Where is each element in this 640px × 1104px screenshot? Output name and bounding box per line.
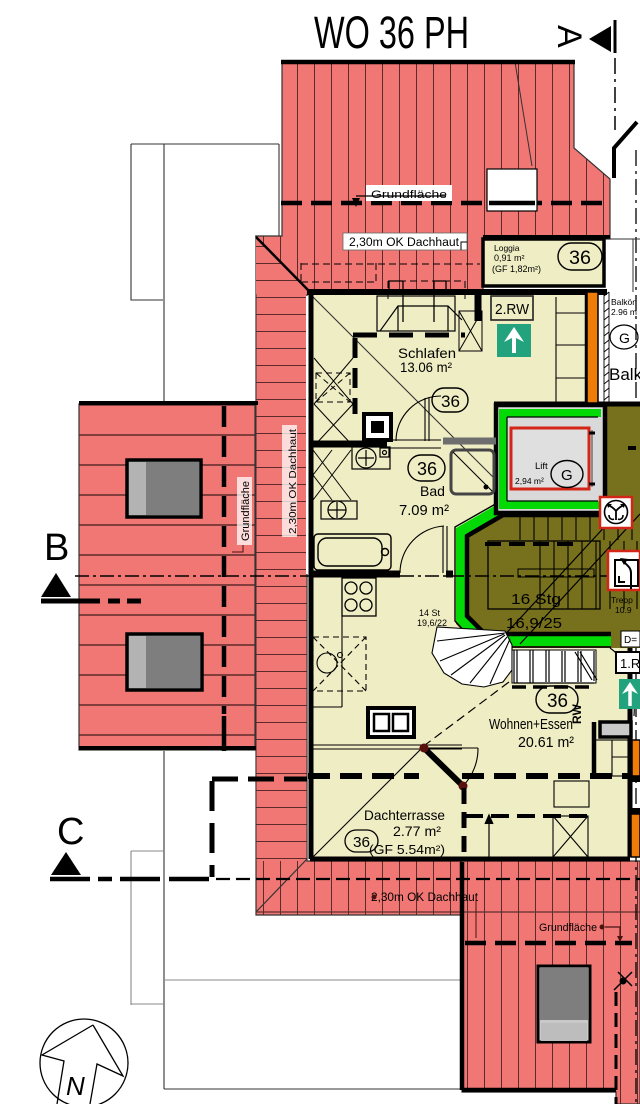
svg-text:36: 36: [441, 392, 460, 411]
svg-text:D=: D=: [624, 635, 637, 646]
svg-text:Grundfläche: Grundfläche: [240, 481, 252, 541]
svg-text:2,94 m²: 2,94 m²: [515, 476, 544, 486]
svg-text:Lift: Lift: [535, 461, 548, 472]
svg-text:0,91 m²: 0,91 m²: [494, 253, 525, 263]
svg-text:36: 36: [547, 691, 568, 712]
svg-text:Balkön: Balkön: [611, 297, 637, 307]
svg-text:2.96 m: 2.96 m: [611, 307, 637, 317]
svg-text:Loggia: Loggia: [494, 243, 520, 253]
svg-text:2.77 m²: 2.77 m²: [393, 823, 441, 839]
svg-text:14 St: 14 St: [419, 608, 441, 618]
svg-text:Balk: Balk: [609, 365, 640, 384]
svg-text:2,30m OK Dachhaut: 2,30m OK Dachhaut: [287, 429, 299, 534]
svg-text:B: B: [44, 527, 69, 569]
svg-text:36: 36: [569, 248, 591, 269]
svg-text:2,30m OK Dachhaut: 2,30m OK Dachhaut: [349, 237, 460, 249]
svg-text:Dachterrasse: Dachterrasse: [364, 807, 445, 823]
svg-text:36: 36: [417, 459, 437, 479]
svg-text:2,30m OK Dachhaut: 2,30m OK Dachhaut: [371, 892, 479, 904]
svg-text:(GF 1,82m²): (GF 1,82m²): [492, 264, 541, 274]
svg-text:G: G: [619, 330, 630, 346]
svg-text:A: A: [550, 25, 588, 48]
svg-text:36: 36: [353, 834, 370, 851]
svg-text:7.09 m²: 7.09 m²: [399, 502, 449, 519]
svg-text:N: N: [66, 1071, 85, 1101]
svg-text:19,6/22: 19,6/22: [417, 618, 447, 628]
svg-text:Grundfläche: Grundfläche: [539, 922, 597, 934]
svg-text:C: C: [57, 811, 84, 853]
svg-text:Trepp: Trepp: [611, 595, 633, 605]
svg-text:G: G: [561, 467, 573, 484]
svg-text:2.RW: 2.RW: [495, 301, 530, 318]
svg-text:Wohnen+Essen: Wohnen+Essen: [489, 716, 573, 733]
svg-text:WO 36 PH: WO 36 PH: [314, 7, 469, 58]
svg-text:16,9/25: 16,9/25: [506, 615, 562, 632]
svg-text:13.06 m²: 13.06 m²: [400, 359, 452, 375]
svg-text:10.9: 10.9: [615, 605, 632, 615]
svg-text:Grundfläche: Grundfläche: [371, 189, 447, 201]
svg-text:Bad: Bad: [420, 483, 445, 499]
svg-text:20.61 m²: 20.61 m²: [518, 734, 574, 751]
svg-text:(GF 5.54m²): (GF 5.54m²): [369, 842, 445, 857]
svg-text:16 Stg: 16 Stg: [511, 591, 561, 608]
svg-text:1.R: 1.R: [620, 656, 640, 671]
